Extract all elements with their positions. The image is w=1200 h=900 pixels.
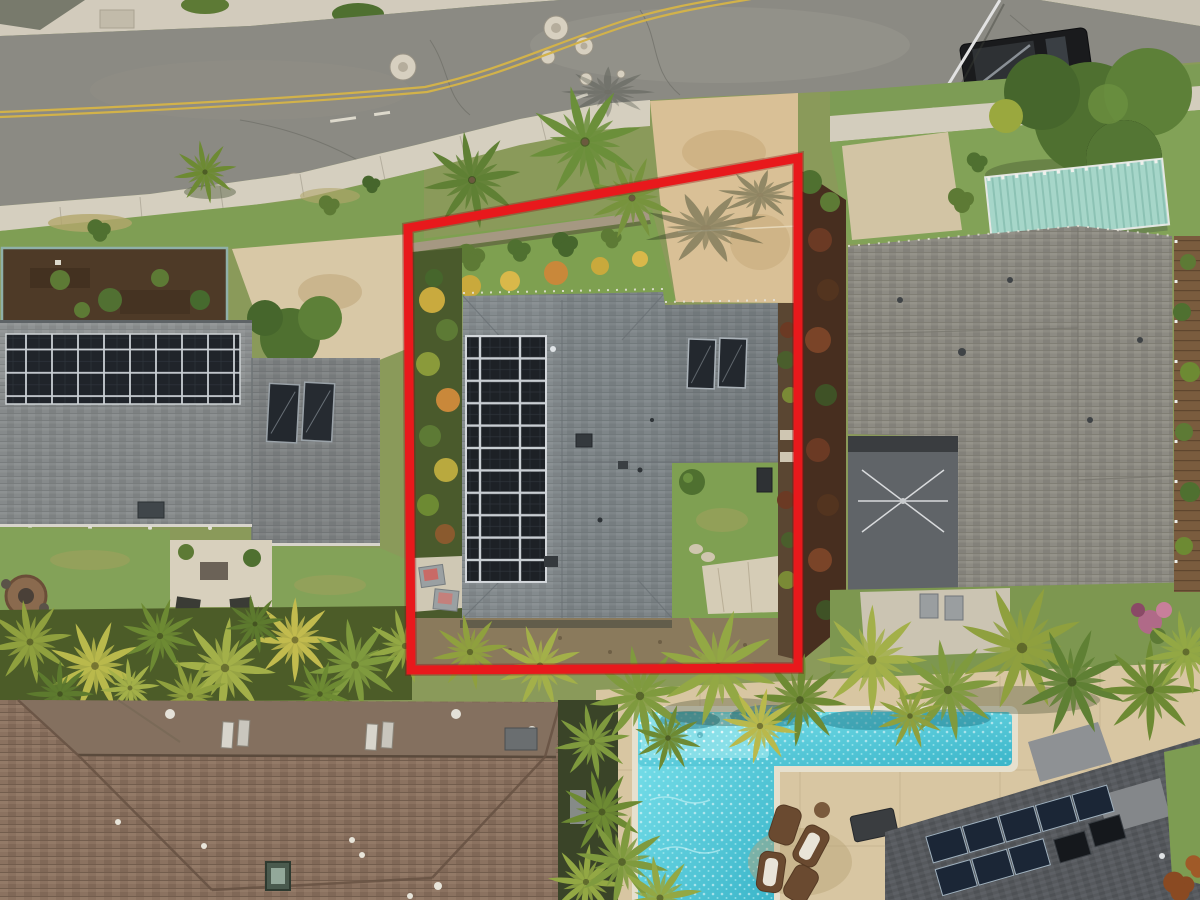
stepping-stone bbox=[701, 552, 715, 562]
roof-vent bbox=[138, 502, 164, 518]
courtyard-bush bbox=[679, 469, 705, 495]
dry-patch bbox=[294, 575, 366, 595]
roof-dot bbox=[650, 418, 654, 422]
roof-vent bbox=[544, 556, 558, 567]
laundry-patio bbox=[848, 436, 958, 590]
roof-vent bbox=[618, 461, 628, 469]
potted-plant bbox=[243, 549, 261, 567]
side-boardwalk bbox=[1173, 236, 1200, 592]
dry-patch bbox=[50, 550, 130, 570]
roof-flat-section bbox=[18, 700, 560, 757]
array-junction-box bbox=[550, 346, 556, 352]
rooftop-unit bbox=[505, 728, 537, 750]
stepping-stone bbox=[780, 452, 794, 462]
utility-pad bbox=[100, 10, 134, 28]
potted-plant bbox=[178, 544, 194, 560]
bush-highlight bbox=[683, 473, 693, 483]
stepping-stone bbox=[780, 430, 794, 440]
roof-ridge-edge bbox=[0, 320, 252, 323]
garden-marker bbox=[55, 260, 61, 265]
croton-bush bbox=[459, 275, 481, 297]
croton-bush bbox=[500, 271, 520, 291]
croton-bush bbox=[632, 251, 648, 267]
aerial-photo: Aerial drone photo of a residential lot … bbox=[0, 0, 1200, 900]
croton-bush bbox=[544, 261, 568, 285]
ac-unit bbox=[920, 594, 938, 618]
roof-dot bbox=[1159, 853, 1165, 859]
croton-bush bbox=[591, 257, 609, 275]
neighbor-path bbox=[842, 132, 962, 240]
rear-patio bbox=[170, 540, 272, 614]
courtyard-patio bbox=[702, 556, 778, 614]
courtyard bbox=[672, 463, 778, 618]
roof-dot bbox=[638, 468, 643, 473]
aerial-scene bbox=[0, 0, 1200, 900]
garden-bed bbox=[2, 248, 227, 330]
stepping-stone bbox=[689, 544, 703, 554]
bottom-left-house bbox=[0, 700, 580, 900]
roof-dot bbox=[598, 518, 603, 523]
subject-solar-array bbox=[466, 336, 546, 582]
side-table bbox=[814, 802, 830, 818]
side-garden-strip bbox=[412, 248, 462, 620]
skylight-vent bbox=[576, 434, 592, 447]
skylight bbox=[266, 862, 290, 890]
ac-unit bbox=[945, 596, 963, 620]
patio-table bbox=[200, 562, 228, 580]
eave-line bbox=[0, 524, 252, 527]
bbq-grill bbox=[757, 468, 772, 492]
green-hedge bbox=[820, 192, 840, 212]
boundary-hedge bbox=[798, 170, 846, 662]
yellow-bush bbox=[989, 99, 1023, 133]
left-solar-array bbox=[6, 334, 240, 404]
